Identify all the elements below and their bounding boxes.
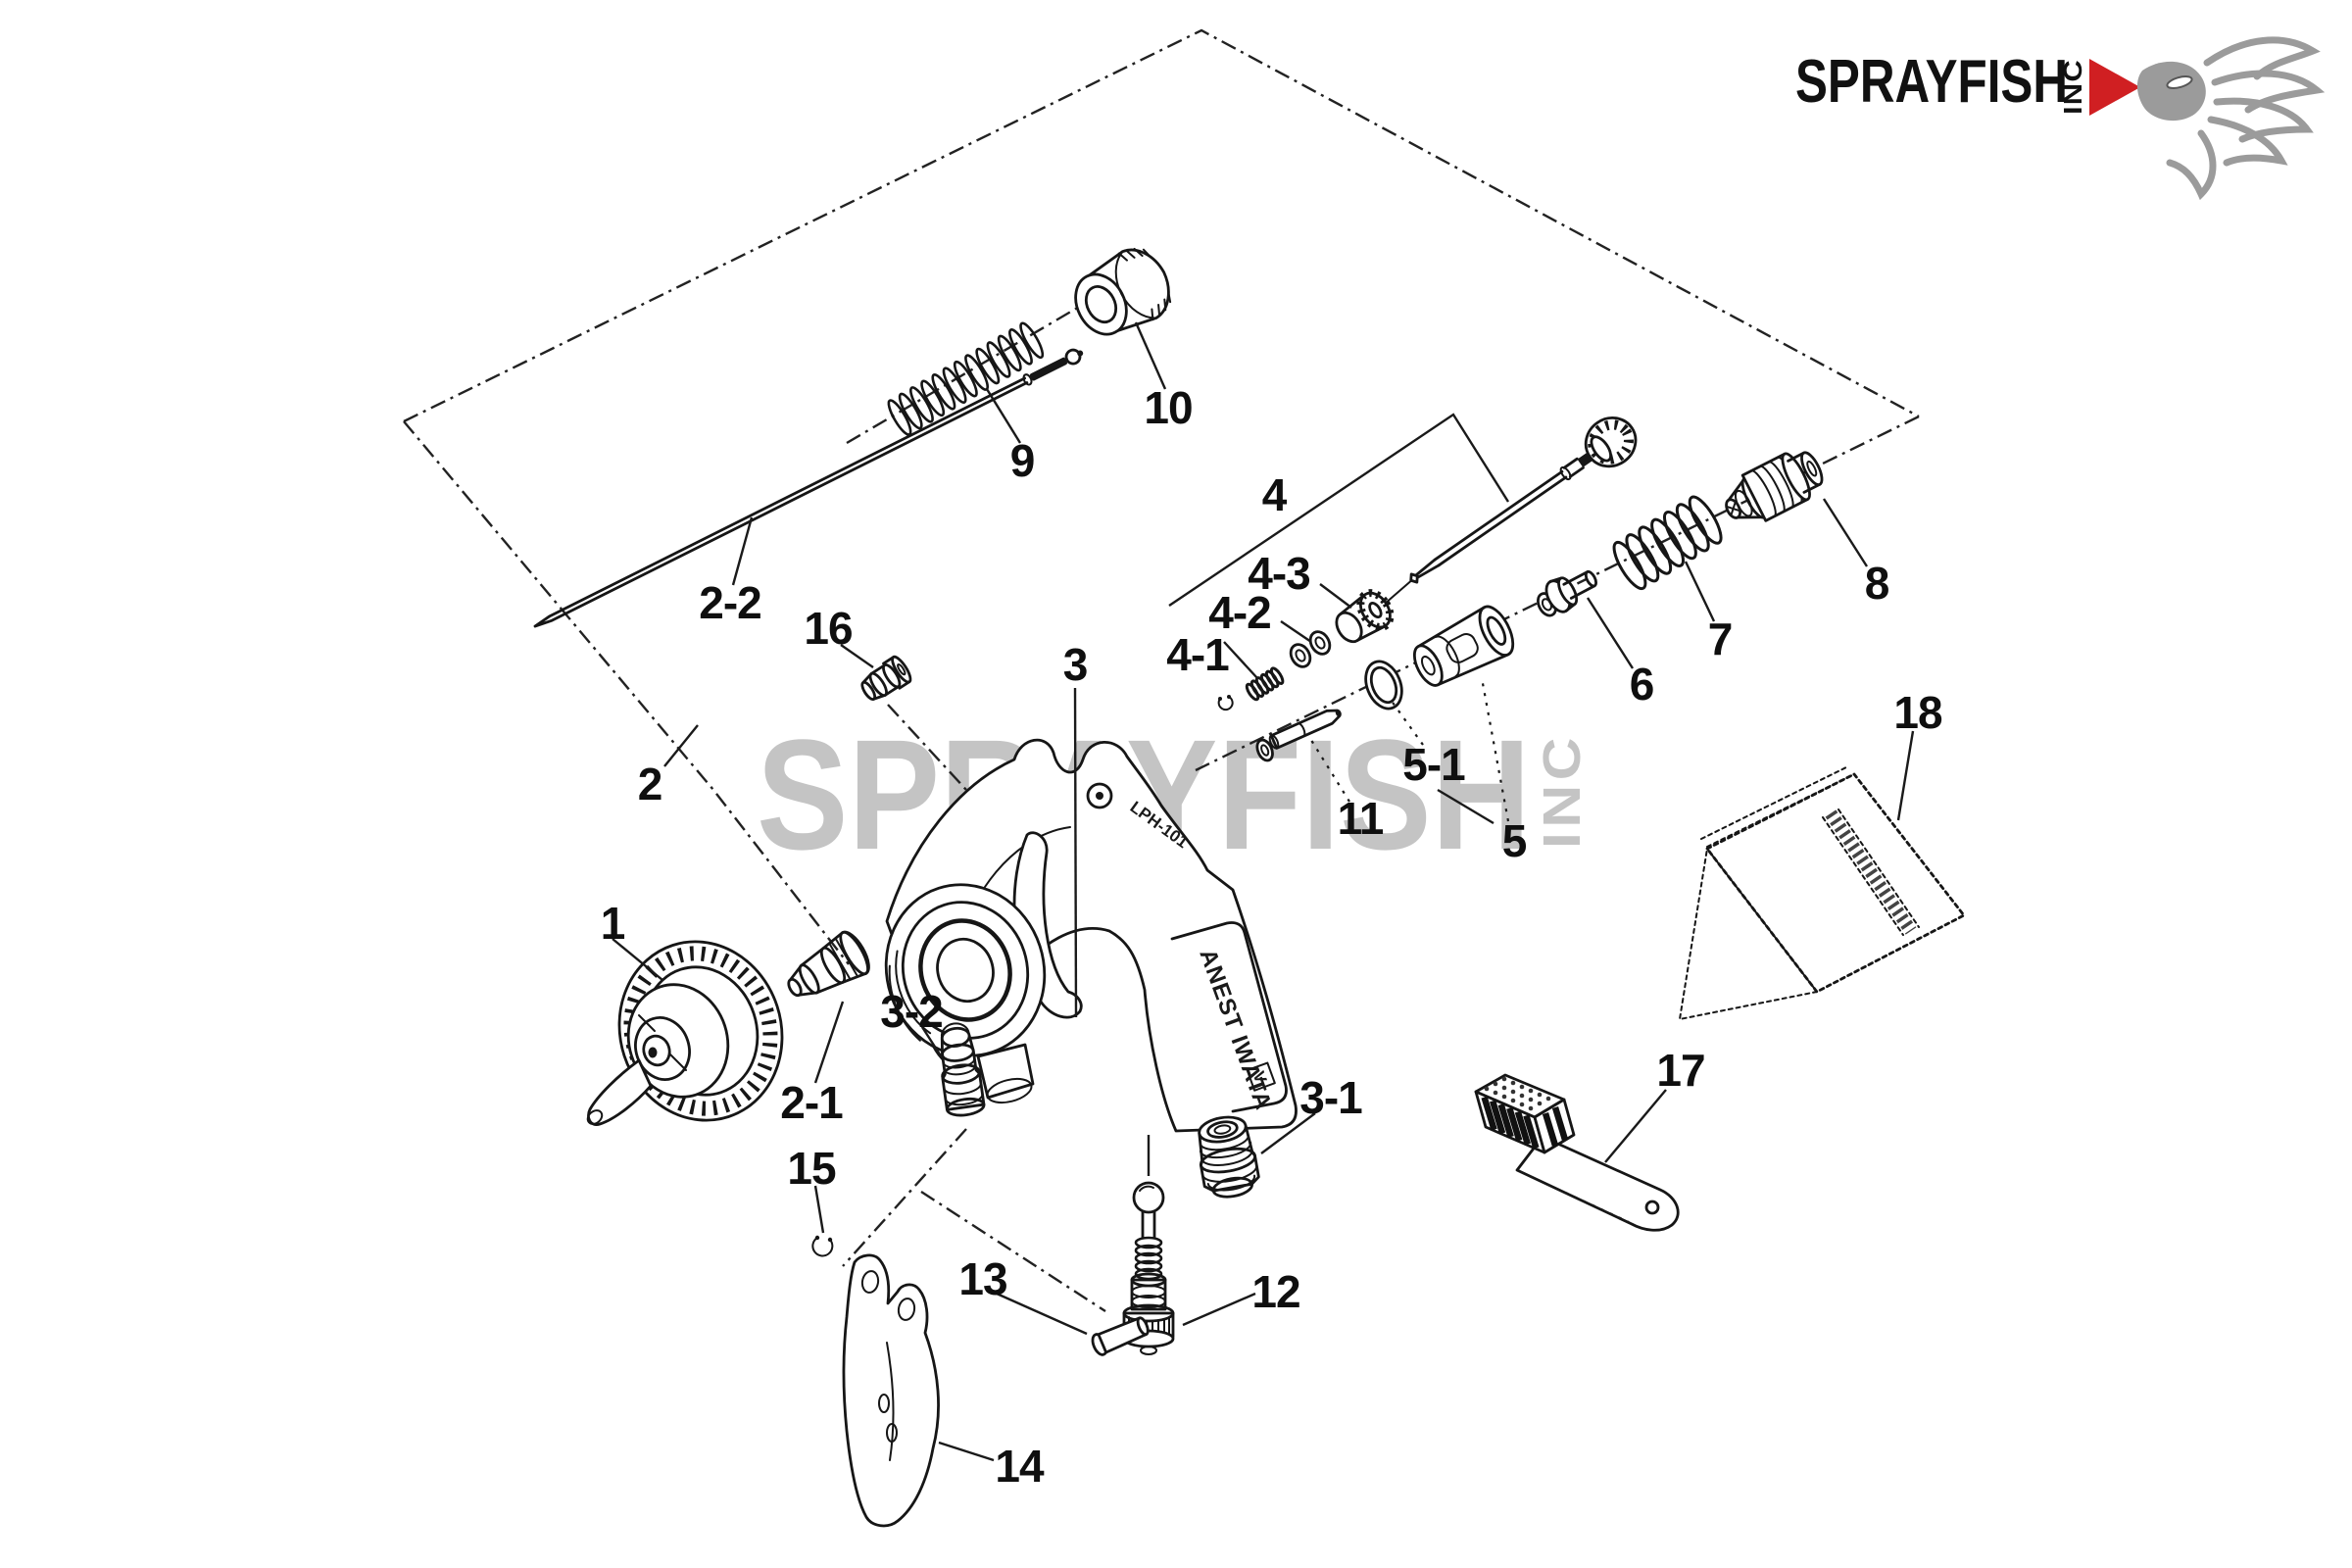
- label-7: 7: [1708, 613, 1733, 664]
- pin-axis-line: [921, 1192, 1105, 1311]
- assembly-axis-lines: [404, 30, 1919, 1311]
- air-cap-1-drawing: [585, 920, 805, 1142]
- label-6: 6: [1630, 659, 1654, 710]
- packing-washers-4-2-drawing: [1287, 628, 1334, 670]
- label-1: 1: [601, 898, 625, 949]
- label-8: 8: [1865, 558, 1889, 609]
- air-set-nut-10-drawing: [1063, 239, 1181, 348]
- valve-bolt-6-drawing: [1531, 563, 1601, 621]
- o-ring-5-1-drawing: [1359, 656, 1408, 713]
- packing-gland-4-3-drawing: [1330, 588, 1396, 649]
- cleaning-brush-17-drawing: [1476, 1075, 1678, 1230]
- marquee-line: [404, 30, 1919, 421]
- label-2-1: 2-1: [780, 1077, 843, 1128]
- clip-15-drawing: [812, 1236, 832, 1256]
- exploded-parts-diagram: SPRAYFISH INC: [0, 0, 2352, 1568]
- valve-spring-7-drawing: [1608, 493, 1726, 593]
- label-10: 10: [1144, 382, 1192, 433]
- label-3-1: 3-1: [1299, 1072, 1362, 1123]
- logo-brand-text: SPRAYFISH: [1795, 48, 2068, 116]
- label-4: 4: [1262, 469, 1288, 520]
- label-15: 15: [787, 1143, 836, 1194]
- needle-4-drawing: [1356, 409, 1645, 628]
- label-5: 5: [1502, 815, 1527, 866]
- trigger-14-drawing: [844, 1255, 939, 1526]
- label-4-3: 4-3: [1248, 548, 1309, 599]
- label-16: 16: [804, 603, 852, 654]
- fluid-nozzle-2-1-drawing: [779, 928, 875, 1010]
- label-17: 17: [1656, 1045, 1704, 1096]
- fish-feathers-icon: [2170, 40, 2317, 194]
- logo-suffix-text: INC: [2058, 59, 2087, 115]
- group4-bracket: [1169, 415, 1508, 606]
- label-18: 18: [1893, 687, 1942, 738]
- sprayfish-logo: SPRAYFISH INC: [1795, 40, 2317, 194]
- label-5-1: 5-1: [1402, 739, 1465, 790]
- logo-triangle-icon: [2089, 59, 2140, 116]
- watermark-suffix: INC: [1533, 733, 1592, 849]
- label-12: 12: [1251, 1266, 1299, 1317]
- label-2: 2: [638, 759, 662, 809]
- air-valve-8-drawing: [1716, 443, 1829, 534]
- fish-head-icon: [2137, 62, 2206, 121]
- label-13: 13: [958, 1253, 1006, 1304]
- part-labels: 1 2 2-1 2-2 3 3-1 3-2 4 4-1 4-2 4-3 5 5-…: [601, 382, 1942, 1492]
- label-3-2: 3-2: [880, 986, 942, 1037]
- label-11: 11: [1338, 793, 1384, 844]
- label-2-2: 2-2: [699, 577, 760, 628]
- needle-2-2-drawing: [532, 346, 1086, 632]
- spring-nut-axis-line: [847, 303, 1086, 443]
- label-9: 9: [1010, 435, 1035, 486]
- label-3: 3: [1063, 639, 1088, 690]
- group2-axis-line: [404, 421, 849, 964]
- valve-seat-5-drawing: [1406, 602, 1519, 694]
- parts-diagram-page: SPRAYFISH INC: [0, 0, 2352, 1568]
- instruction-sheet-18-drawing: [1680, 766, 1964, 1019]
- trigger-axis-line: [843, 1129, 966, 1266]
- label-14: 14: [995, 1441, 1045, 1492]
